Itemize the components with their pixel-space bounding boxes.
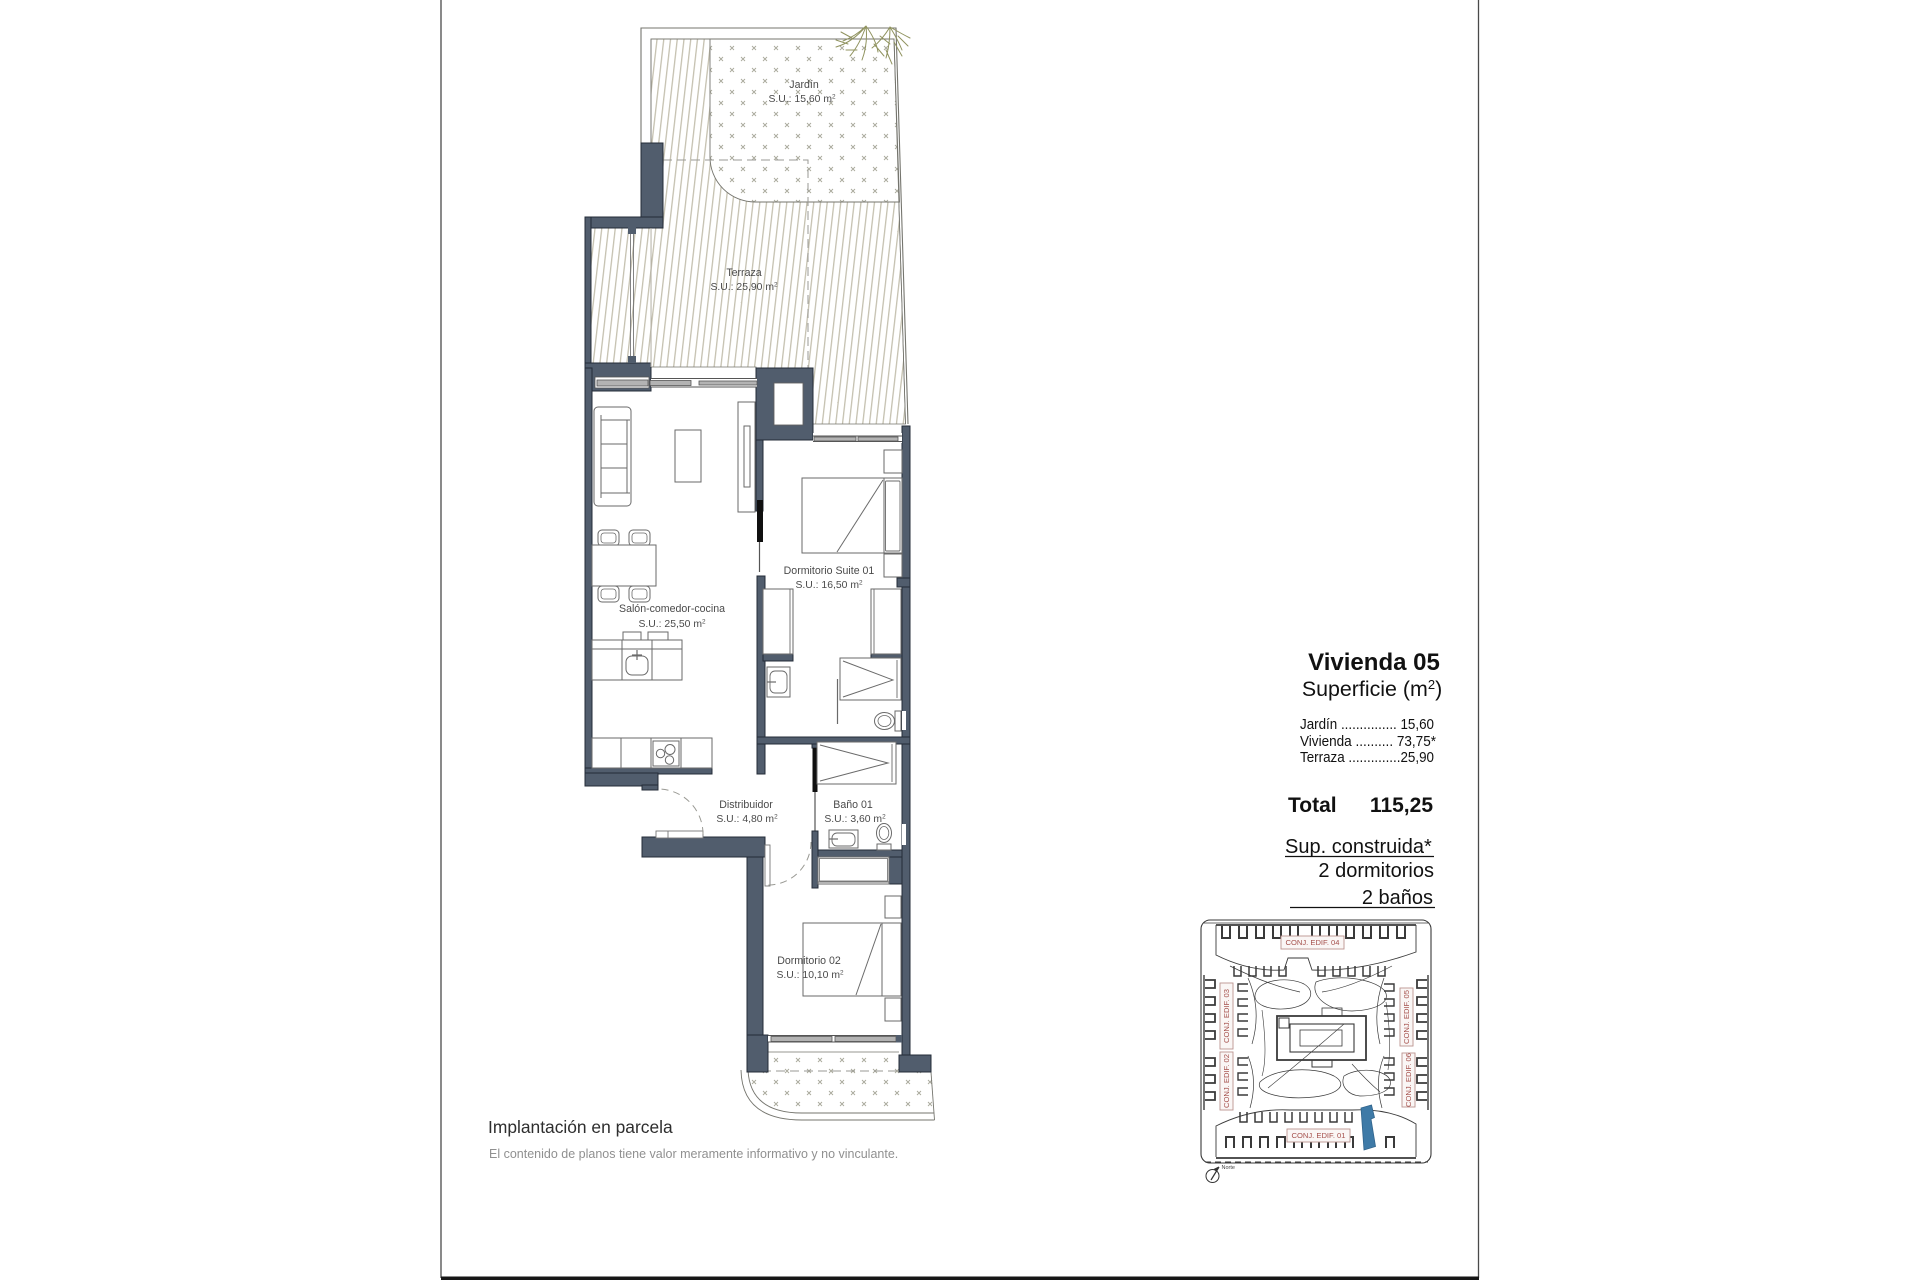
- svg-text:Total: Total: [1288, 794, 1337, 817]
- svg-text:S.U.: 25,50 m2: S.U.: 25,50 m2: [638, 619, 706, 631]
- svg-text:CONJ. EDIF. 02: CONJ. EDIF. 02: [1222, 1054, 1231, 1108]
- svg-text:CONJ. EDIF. 01: CONJ. EDIF. 01: [1291, 1131, 1345, 1140]
- svg-text:Sup. construida*: Sup. construida*: [1285, 836, 1432, 858]
- svg-text:Implantación en parcela: Implantación en parcela: [488, 1117, 673, 1137]
- svg-text:El contenido de planos tiene v: El contenido de planos tiene valor meram…: [489, 1147, 898, 1161]
- svg-text:Salón-comedor-cocina: Salón-comedor-cocina: [619, 603, 725, 615]
- svg-text:Vivienda 05: Vivienda 05: [1308, 649, 1440, 676]
- svg-text:Norte: Norte: [1222, 1165, 1235, 1171]
- svg-text:S.U.: 3,60 m2: S.U.: 3,60 m2: [824, 814, 886, 826]
- svg-text:S.U.: 10,10 m2: S.U.: 10,10 m2: [776, 970, 844, 982]
- svg-text:2 dormitorios: 2 dormitorios: [1318, 860, 1434, 882]
- svg-text:Terraza ..............25,90: Terraza ..............25,90: [1300, 749, 1434, 766]
- svg-text:CONJ. EDIF. 03: CONJ. EDIF. 03: [1222, 989, 1231, 1043]
- svg-text:CONJ. EDIF. 06: CONJ. EDIF. 06: [1404, 1053, 1413, 1107]
- svg-text:Baño 01: Baño 01: [833, 799, 873, 811]
- svg-text:Distribuidor: Distribuidor: [719, 799, 773, 811]
- svg-text:Jardín ............... 15,60: Jardín ............... 15,60: [1300, 716, 1434, 733]
- svg-text:2 baños: 2 baños: [1362, 887, 1433, 909]
- svg-text:115,25: 115,25: [1370, 794, 1433, 817]
- svg-text:CONJ. EDIF. 05: CONJ. EDIF. 05: [1402, 990, 1411, 1044]
- svg-text:S.U.: 16,50 m2: S.U.: 16,50 m2: [795, 580, 863, 592]
- svg-text:CONJ. EDIF. 04: CONJ. EDIF. 04: [1285, 938, 1339, 947]
- svg-text:Superficie (m2): Superficie (m2): [1302, 677, 1442, 701]
- svg-text:Dormitorio Suite 01: Dormitorio Suite 01: [784, 565, 875, 577]
- svg-text:S.U.: 4,80 m2: S.U.: 4,80 m2: [716, 814, 778, 826]
- svg-text:S.U.: 15,60 m2: S.U.: 15,60 m2: [768, 94, 836, 106]
- svg-text:Terraza: Terraza: [726, 267, 761, 279]
- svg-text:Vivienda .......... 73,75*: Vivienda .......... 73,75*: [1300, 733, 1436, 750]
- svg-text:Dormitorio 02: Dormitorio 02: [777, 955, 841, 967]
- svg-text:S.U.: 25,90 m2: S.U.: 25,90 m2: [710, 282, 778, 294]
- svg-text:Jardín: Jardín: [789, 79, 819, 91]
